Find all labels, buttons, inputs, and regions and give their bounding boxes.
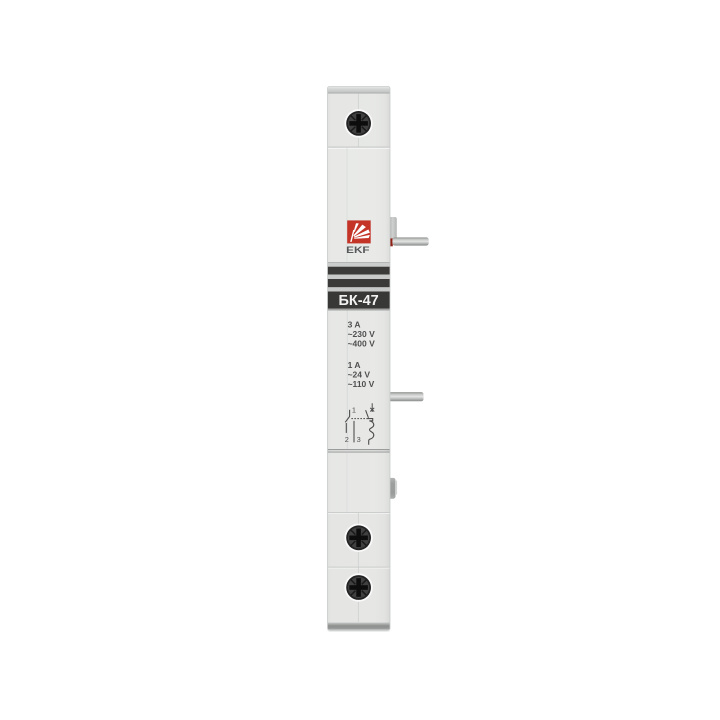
svg-text:~24 V: ~24 V (348, 370, 371, 380)
svg-text:3 A: 3 A (348, 320, 361, 330)
svg-text:~400 V: ~400 V (348, 339, 376, 349)
svg-text:3: 3 (357, 435, 361, 444)
svg-text:EKF: EKF (346, 245, 370, 255)
svg-text:~110 V: ~110 V (348, 379, 375, 389)
svg-text:2: 2 (345, 435, 349, 444)
svg-text:1: 1 (352, 405, 356, 414)
svg-text:БК-47: БК-47 (338, 293, 378, 309)
